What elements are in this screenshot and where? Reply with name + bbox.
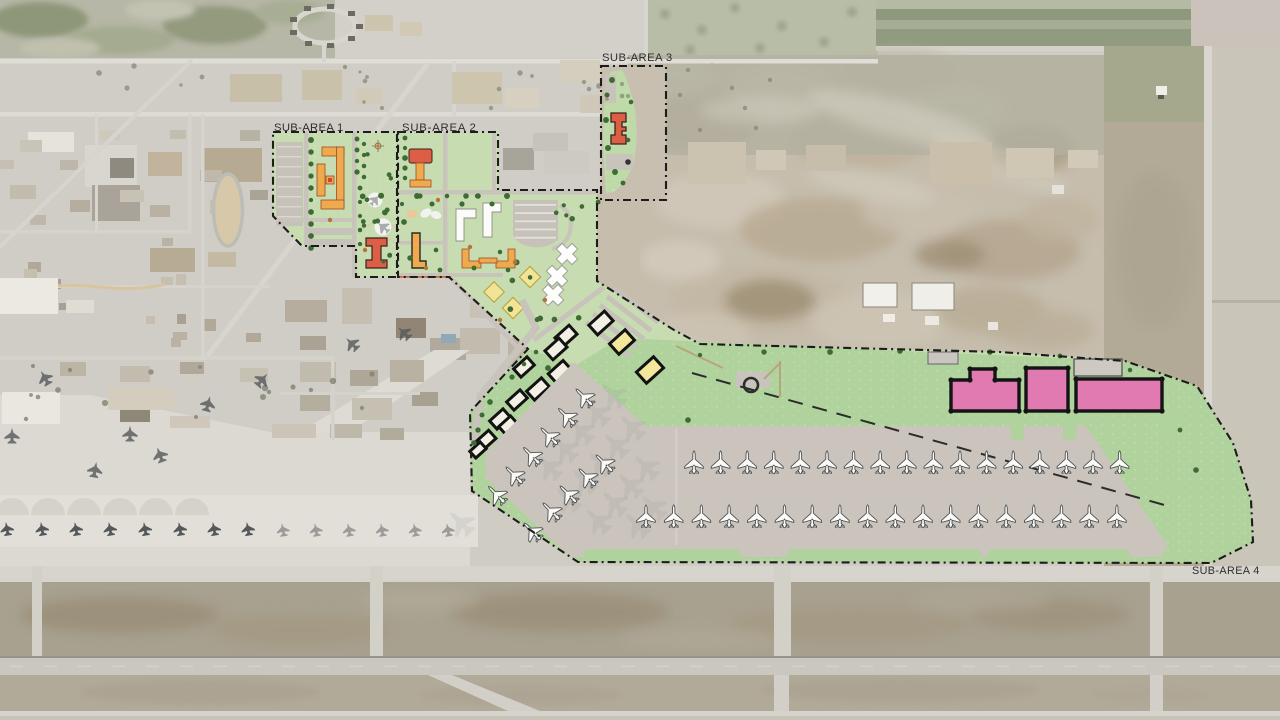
- svg-text:SUB-AREA 4: SUB-AREA 4: [1192, 565, 1260, 577]
- svg-text:SUB-AREA 3: SUB-AREA 3: [602, 52, 673, 64]
- svg-text:SUB-AREA 1: SUB-AREA 1: [274, 122, 344, 134]
- svg-text:SUB-AREA 2: SUB-AREA 2: [402, 122, 477, 134]
